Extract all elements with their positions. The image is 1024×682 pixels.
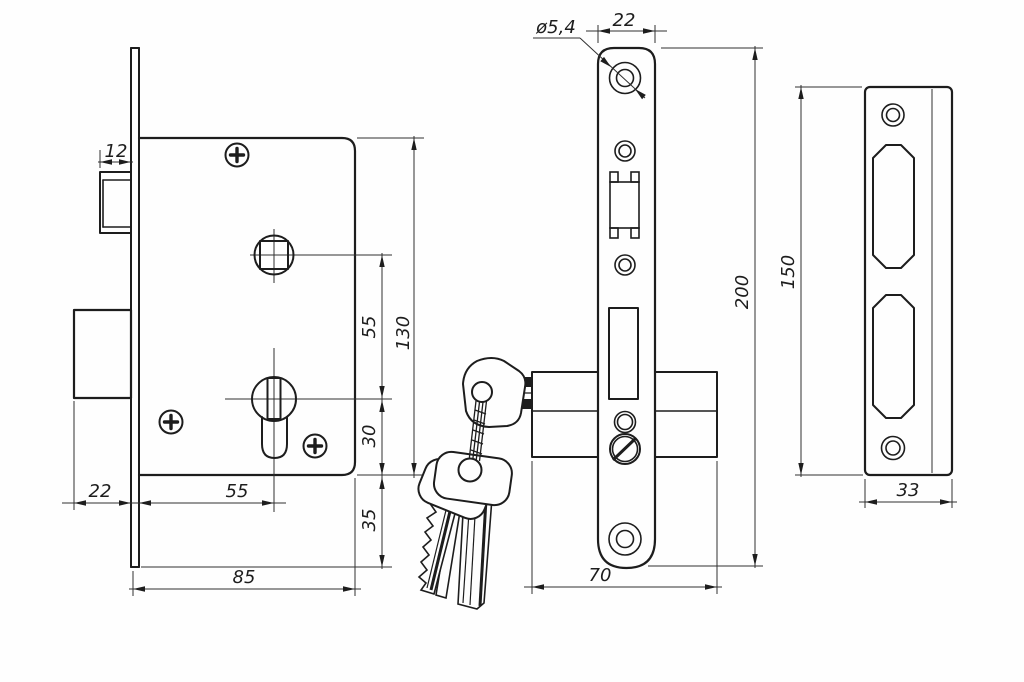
dim-centers-distance: 55 (359, 316, 380, 339)
dim-faceplate-height: 200 (732, 275, 753, 309)
latch-bolt-side (100, 172, 131, 233)
dim-backset: 55 (226, 481, 249, 502)
dim-strike-height: 150 (778, 255, 799, 289)
spindle-hub (250, 229, 392, 283)
phillips-screw-top-icon (226, 144, 249, 167)
mortise-lock-drawing: 12 22 55 85 (0, 0, 1024, 682)
dim-body-depth: 70 (589, 565, 612, 586)
keys-illustration (414, 358, 533, 609)
deadbolt-side (74, 310, 131, 398)
dim-bolt-throw: 22 (89, 481, 112, 502)
dimensions-side-view: 12 22 55 85 (62, 136, 424, 596)
faceplate-side (131, 48, 139, 567)
dim-body-height: 130 (393, 316, 414, 350)
side-view: 12 22 55 85 (62, 48, 424, 596)
front-view: ø5,4 22 200 70 (414, 10, 763, 609)
strike-plate-view: 150 33 (778, 85, 957, 508)
dim-strike-width: 33 (897, 480, 920, 501)
dim-faceplate-width: 22 (613, 10, 636, 31)
inserted-key (463, 358, 533, 427)
dim-hole-diameter: ø5,4 (535, 17, 576, 38)
dim-latch-throw: 12 (105, 141, 128, 162)
dim-body-to-plate-bottom: 35 (359, 509, 380, 532)
dim-body-width: 85 (233, 567, 256, 588)
dim-cylinder-to-bottom: 30 (359, 425, 380, 448)
phillips-screw-left-icon (160, 411, 183, 434)
faceplate-front (598, 48, 655, 568)
technical-drawing-canvas: 12 22 55 85 (0, 0, 1024, 682)
phillips-screw-right-icon (304, 435, 327, 458)
strike-plate (865, 87, 952, 475)
